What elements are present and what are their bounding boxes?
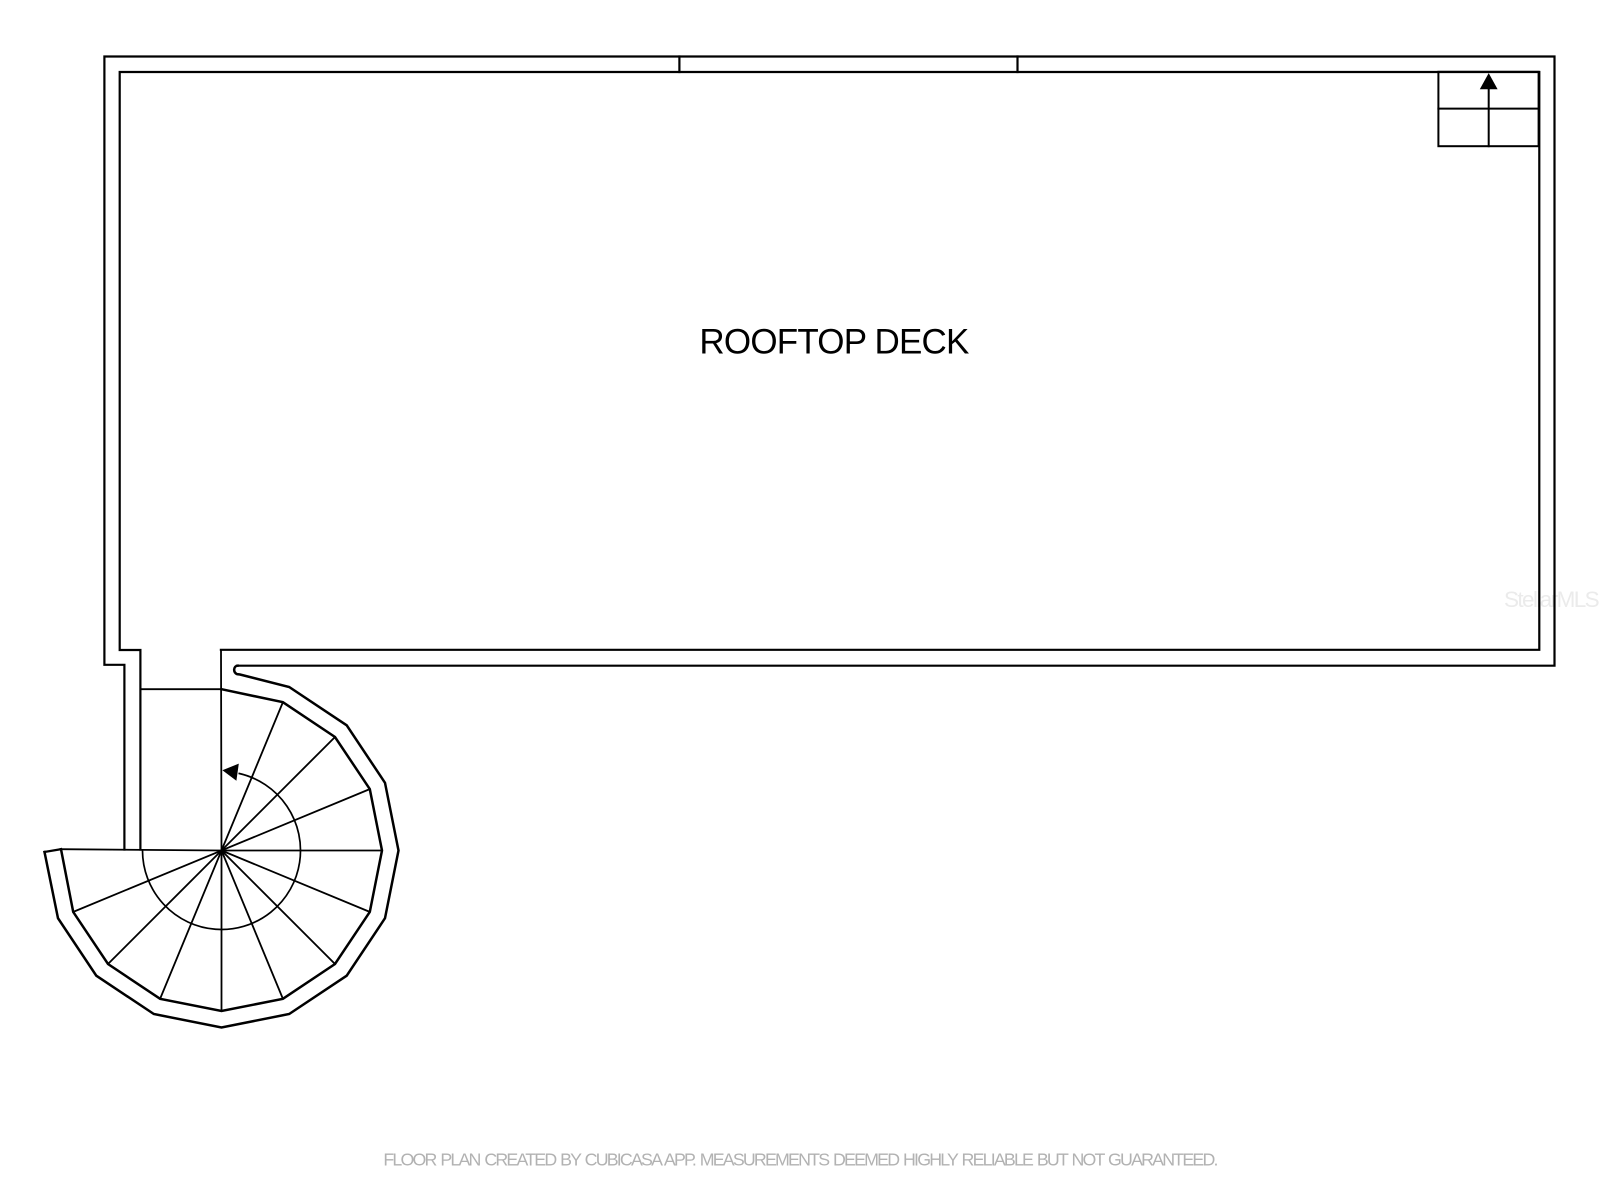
svg-text:ROOFTOP DECK: ROOFTOP DECK [699, 323, 969, 362]
svg-text:FLOOR PLAN CREATED BY CUBICASA: FLOOR PLAN CREATED BY CUBICASA APP. MEAS… [383, 1150, 1217, 1170]
svg-text:StellarMLS: StellarMLS [1504, 587, 1599, 612]
